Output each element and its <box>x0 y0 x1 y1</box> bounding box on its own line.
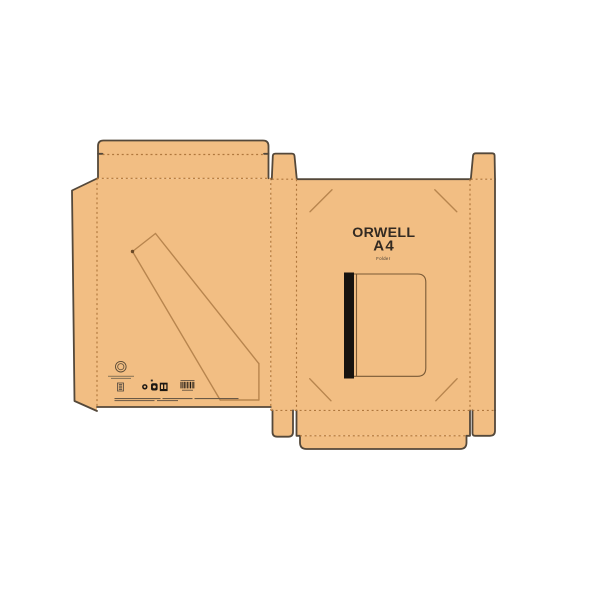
svg-text:A4: A4 <box>373 238 395 255</box>
svg-text:Folder: Folder <box>376 256 390 261</box>
